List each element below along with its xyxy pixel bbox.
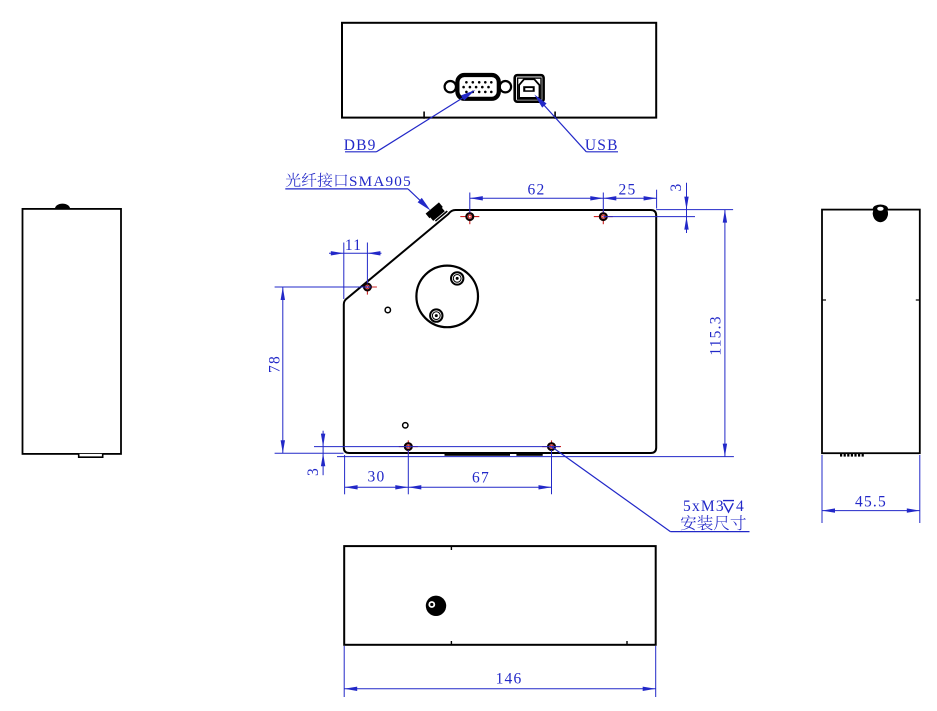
svg-text:4: 4 [736,498,745,515]
svg-text:3: 3 [668,183,685,192]
svg-text:45.5: 45.5 [855,493,887,510]
svg-text:67: 67 [472,469,490,486]
svg-text:3: 3 [305,467,322,476]
svg-text:146: 146 [496,670,523,687]
svg-text:115.3: 115.3 [708,315,725,355]
svg-text:78: 78 [266,355,283,373]
svg-text:11: 11 [345,237,362,254]
svg-text:30: 30 [368,468,386,485]
svg-text:5xM3: 5xM3 [683,498,725,515]
svg-text:25: 25 [619,181,637,198]
svg-text:62: 62 [528,181,546,198]
svg-text:SMA905: SMA905 [349,173,412,190]
